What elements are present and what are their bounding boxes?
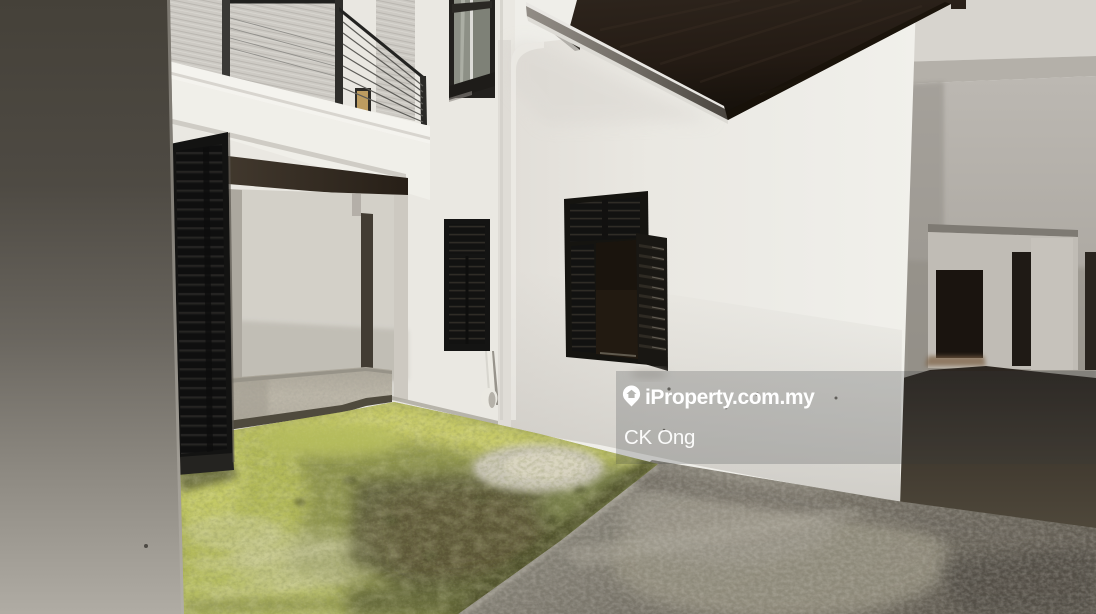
svg-text:CK Ong: CK Ong: [624, 426, 695, 449]
svg-text:iProperty.com.my: iProperty.com.my: [645, 386, 815, 409]
